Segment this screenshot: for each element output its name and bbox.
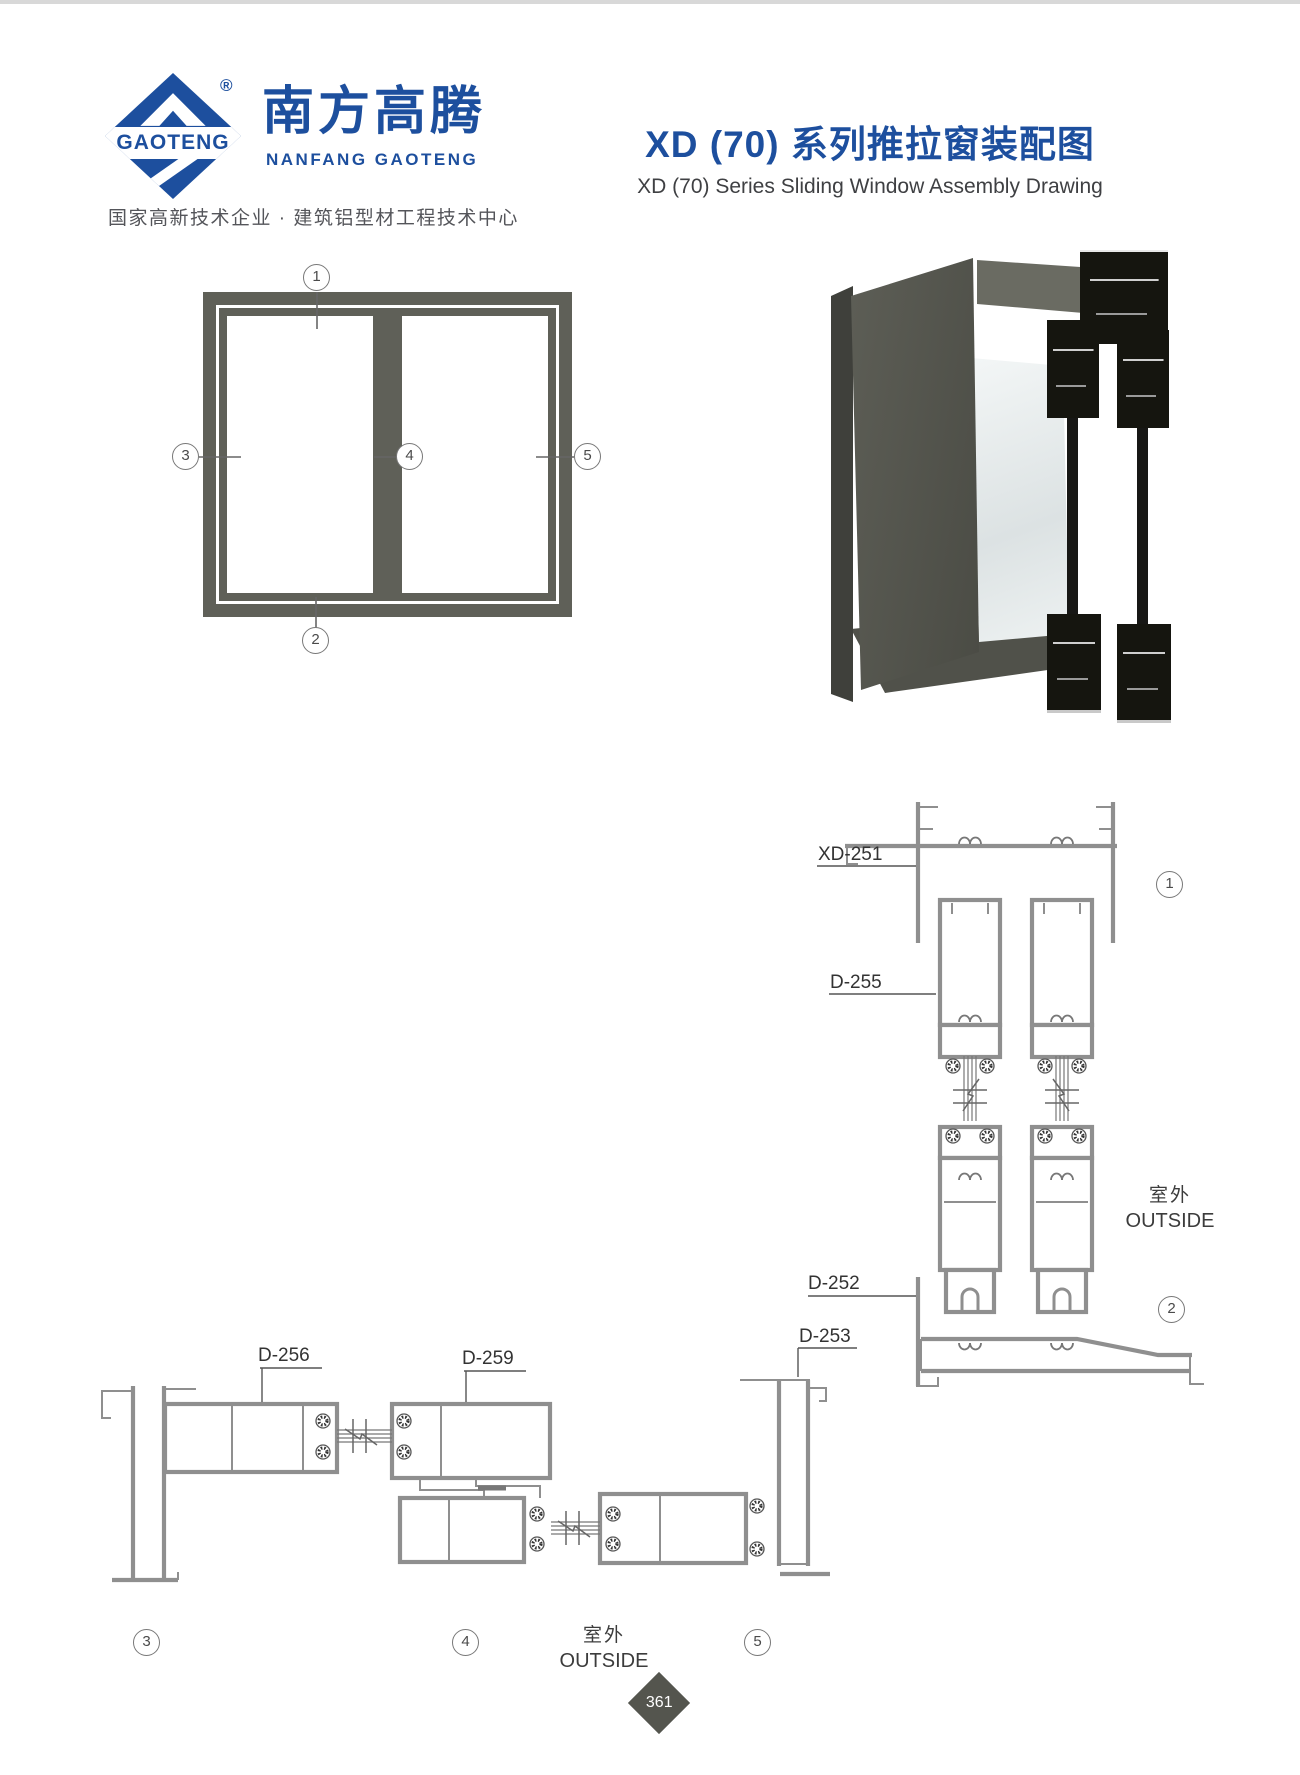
catalog-page: GAOTENG ® 南方高腾 NANFANG GAOTENG 国家高新技术企业 …	[0, 0, 1300, 1775]
outside-cn: 室外	[1115, 1180, 1225, 1207]
label-xd251: XD-251	[818, 844, 882, 866]
marker-3-section: 3	[133, 1629, 160, 1656]
outside-en: OUTSIDE	[1115, 1210, 1225, 1233]
outside-note-right: 室外 OUTSIDE	[1115, 1180, 1225, 1233]
outside-en: OUTSIDE	[549, 1650, 659, 1673]
elevation-marker-ticks	[199, 292, 574, 629]
window-3d-render	[725, 222, 1225, 732]
outside-note-bottom: 室外 OUTSIDE	[549, 1620, 659, 1673]
label-d255: D-255	[830, 972, 882, 994]
render-left-edge	[825, 284, 857, 709]
marker-1-section: 1	[1156, 871, 1183, 898]
label-d256: D-256	[258, 1345, 310, 1367]
meeting-stile-interlock	[420, 1478, 540, 1498]
marker-3-elevation: 3	[172, 443, 199, 470]
marker-5-elevation: 5	[574, 443, 601, 470]
render-frame-face	[851, 252, 983, 697]
sash-section-columns	[940, 900, 1092, 1312]
render-bottom-cut-a	[1047, 614, 1101, 713]
render-bottom-cut-b	[1117, 624, 1171, 723]
label-d253: D-253	[799, 1326, 851, 1348]
leader-lines-vertical	[798, 866, 936, 1377]
marker-4-elevation: 4	[396, 443, 423, 470]
lower-sash-row	[400, 1494, 764, 1563]
marker-2-elevation: 2	[302, 627, 329, 654]
page-number: 361	[646, 1694, 673, 1712]
marker-5-section: 5	[744, 1629, 771, 1656]
leader-lines-horizontal	[260, 1368, 526, 1402]
label-d259: D-259	[462, 1348, 514, 1370]
outside-cn: 室外	[549, 1620, 659, 1647]
marker-1-elevation: 1	[303, 264, 330, 291]
marker-2-section: 2	[1158, 1296, 1185, 1323]
label-d252: D-252	[808, 1273, 860, 1295]
marker-4-section: 4	[452, 1629, 479, 1656]
render-sash-cut-b	[1117, 330, 1169, 428]
render-sash-cut-a	[1047, 320, 1099, 418]
upper-sash-row	[165, 1404, 550, 1478]
